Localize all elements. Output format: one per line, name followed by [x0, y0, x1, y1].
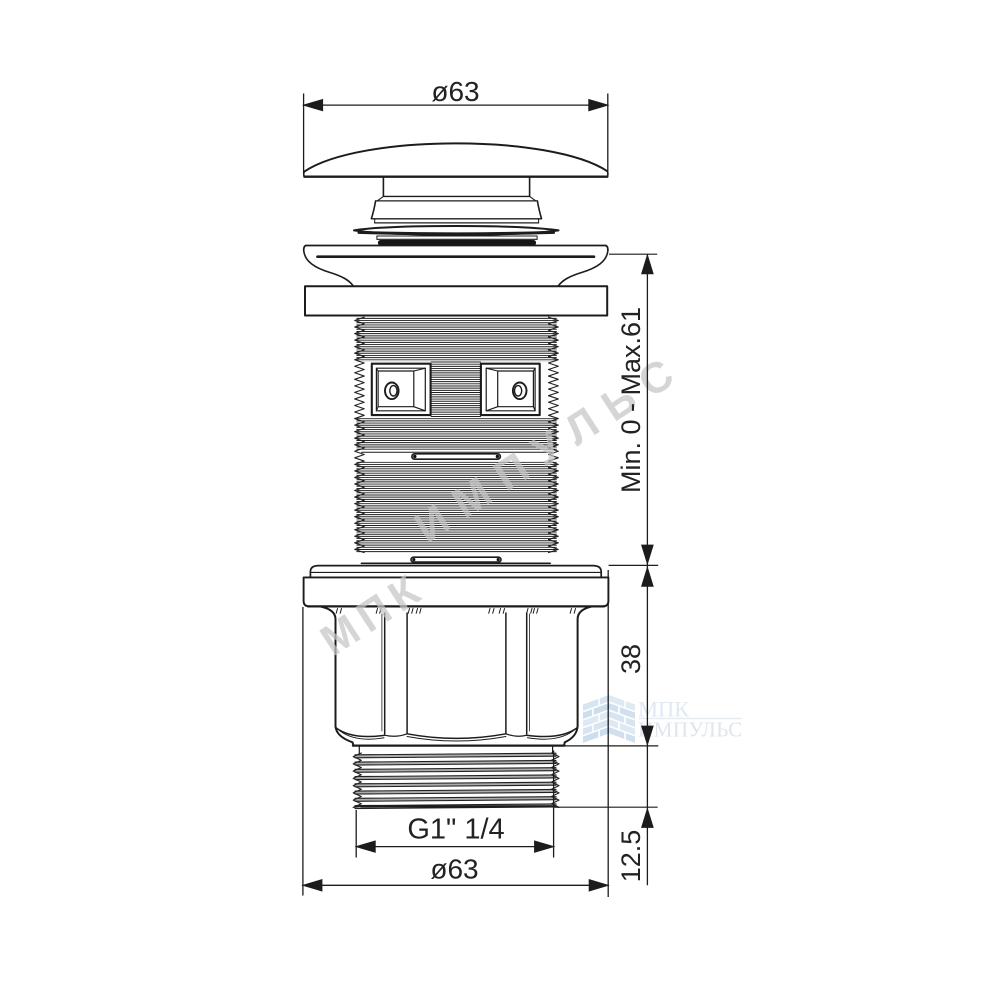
svg-text:ø63: ø63 [431, 76, 479, 107]
svg-text:ø63: ø63 [430, 854, 478, 885]
svg-text:ИМПУЛЬС: ИМПУЛЬС [638, 718, 743, 742]
svg-text:G1" 1/4: G1" 1/4 [407, 813, 504, 845]
svg-text:Min. 0 - Max.61: Min. 0 - Max.61 [616, 307, 646, 493]
svg-text:38: 38 [616, 644, 646, 674]
svg-text:12.5: 12.5 [616, 830, 646, 883]
